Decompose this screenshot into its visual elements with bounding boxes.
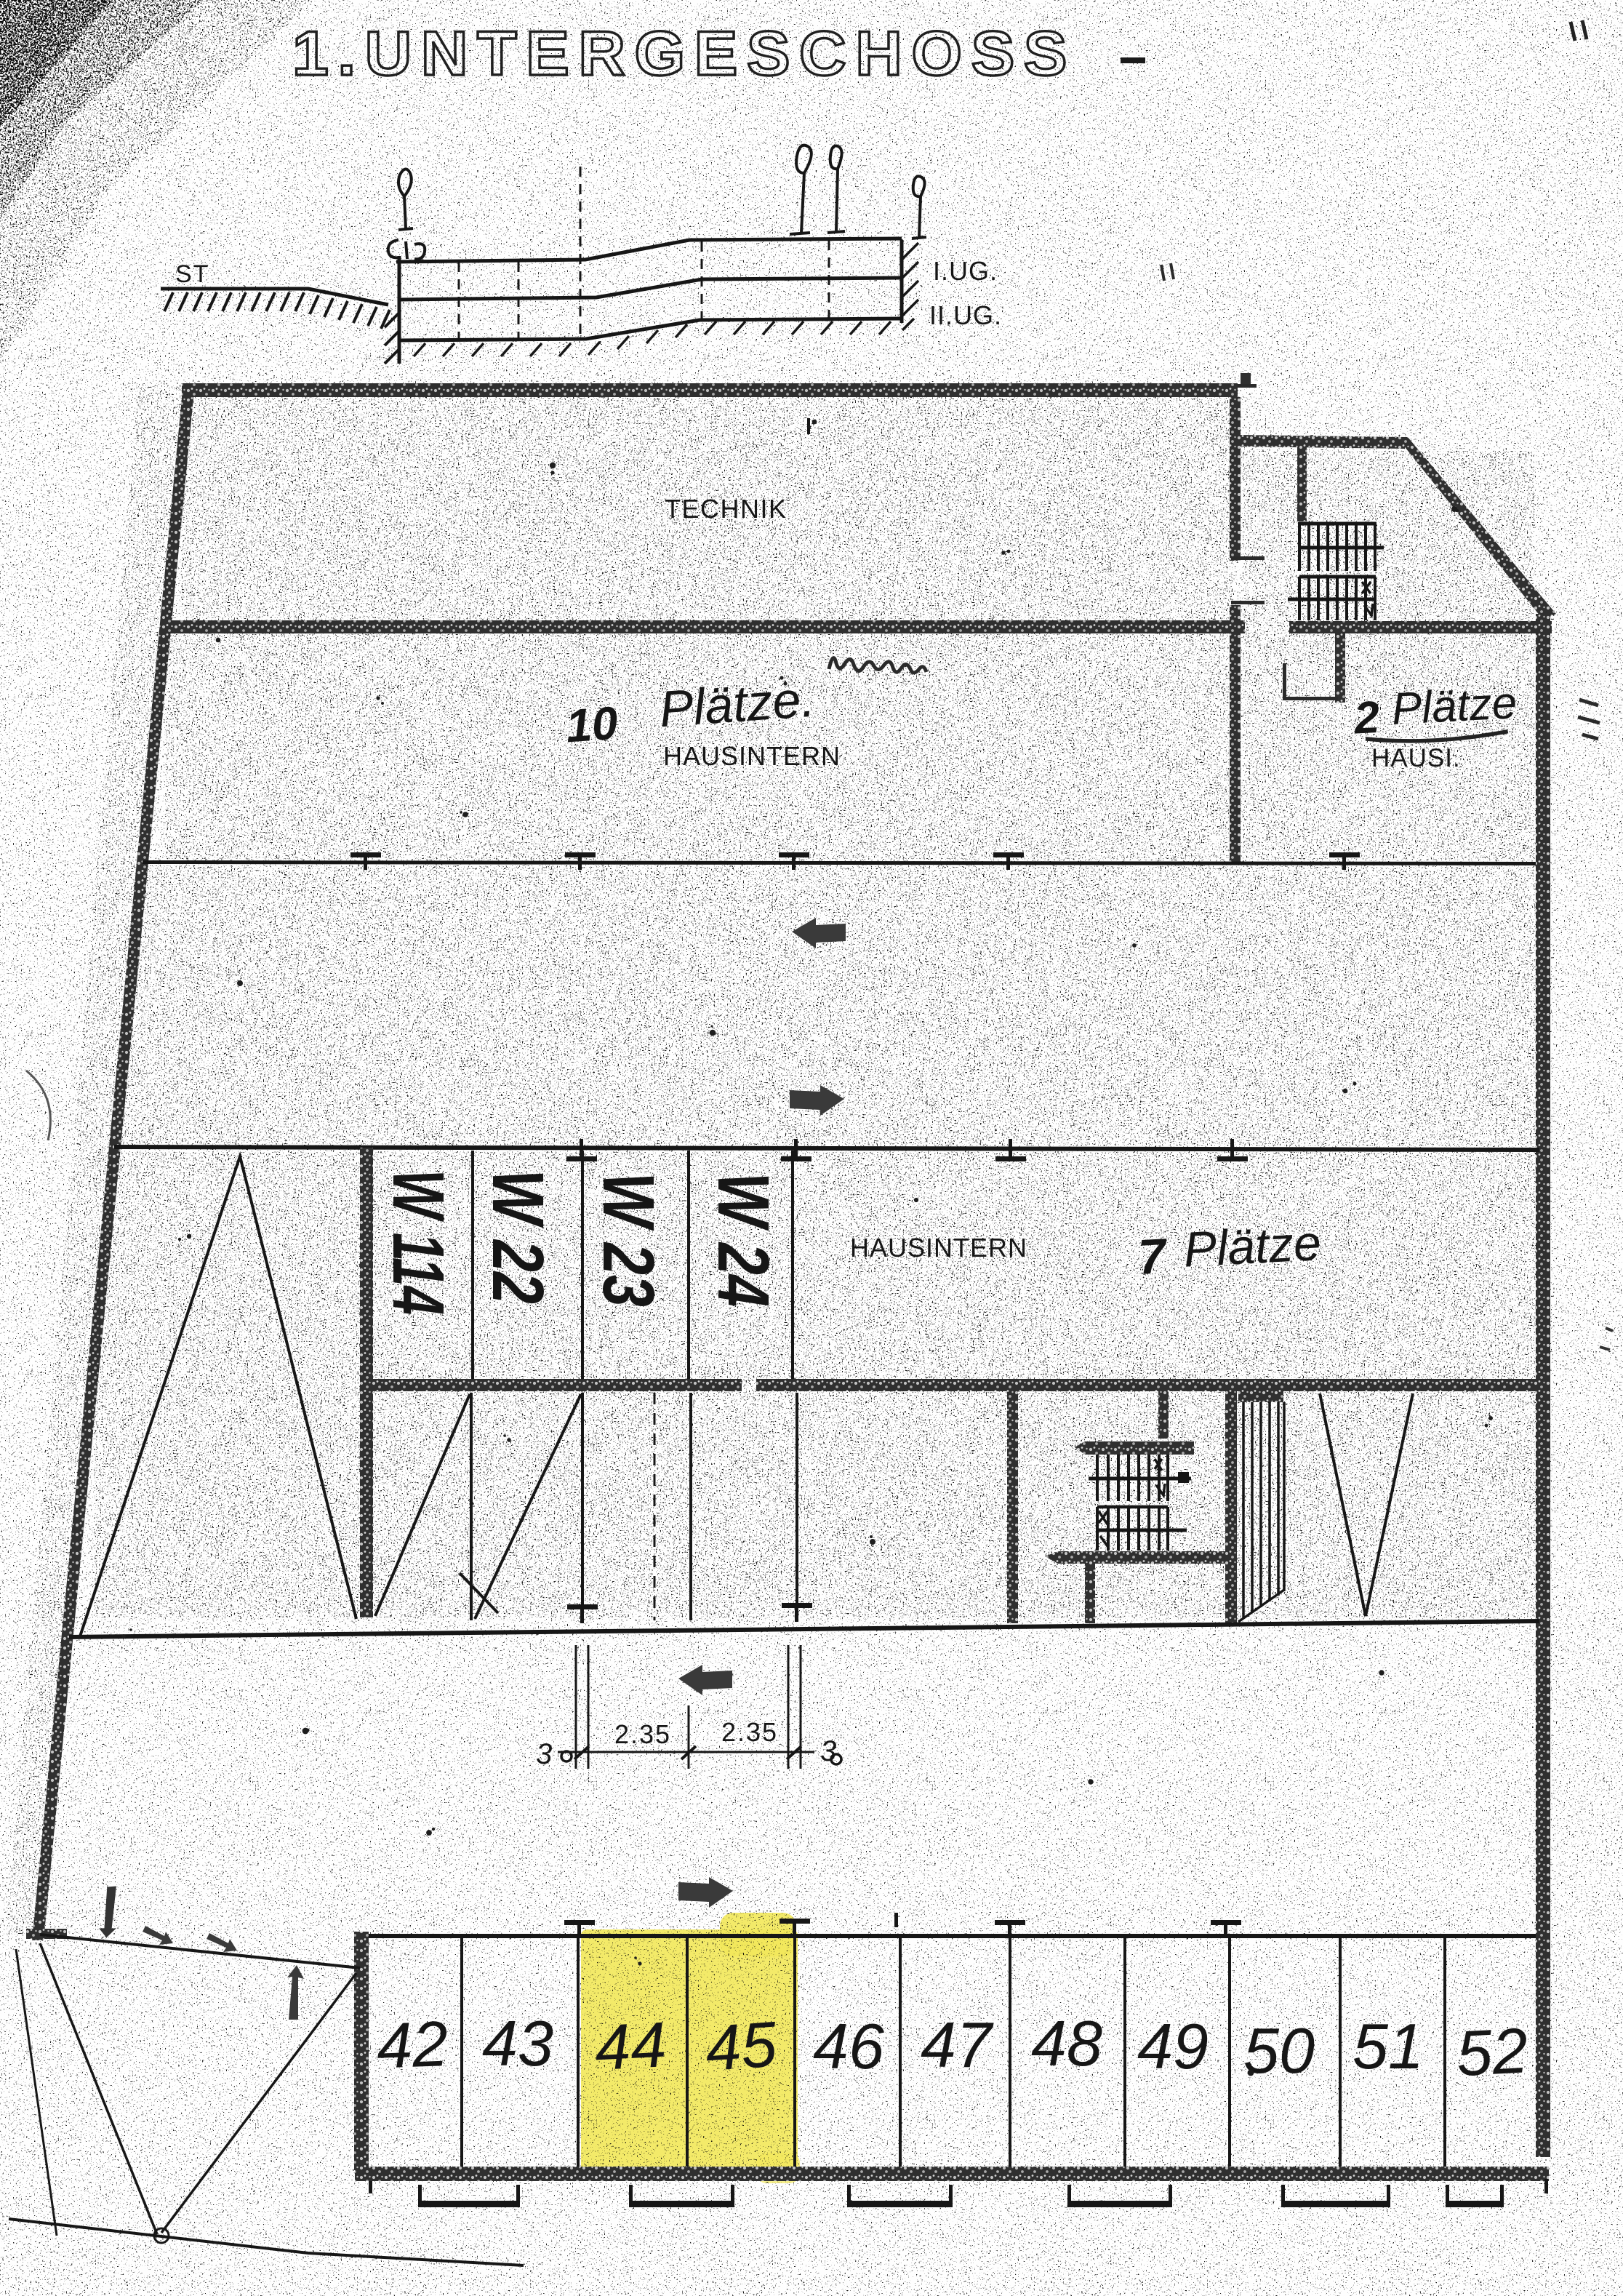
svg-text:HAUSI.: HAUSI. (1371, 744, 1461, 772)
svg-text:48: 48 (1031, 2007, 1102, 2079)
svg-text:Plätze.: Plätze. (657, 671, 817, 738)
svg-text:HAUSINTERN: HAUSINTERN (663, 741, 841, 771)
svg-text:ST: ST (175, 260, 209, 288)
svg-text:44: 44 (593, 2008, 668, 2084)
svg-text:W 114: W 114 (377, 1169, 459, 1315)
svg-text:51: 51 (1352, 2010, 1424, 2082)
svg-text:2.35: 2.35 (614, 1719, 671, 1749)
svg-text:I.UG.: I.UG. (933, 256, 998, 286)
svg-text:45: 45 (703, 2007, 780, 2084)
svg-text:46: 46 (813, 2010, 884, 2082)
svg-text:50: 50 (1243, 2015, 1315, 2087)
svg-text:10: 10 (564, 697, 620, 753)
svg-text:2: 2 (1352, 692, 1381, 744)
svg-text:43: 43 (482, 2007, 553, 2079)
svg-text:52: 52 (1455, 2014, 1530, 2089)
svg-text:Plätze: Plätze (1182, 1215, 1323, 1278)
svg-text:2.35: 2.35 (721, 1717, 778, 1747)
svg-text:Plätze: Plätze (1390, 678, 1518, 735)
svg-text:7: 7 (1137, 1228, 1169, 1285)
svg-text:TECHNIK: TECHNIK (665, 494, 788, 524)
svg-text:1.UNTERGESCHOSS: 1.UNTERGESCHOSS (292, 19, 1076, 89)
svg-text:42: 42 (375, 2007, 449, 2081)
svg-text:HAUSINTERN: HAUSINTERN (850, 1233, 1027, 1263)
svg-text:II.UG.: II.UG. (929, 300, 1002, 330)
svg-text:W 22: W 22 (477, 1169, 558, 1304)
svg-text:49: 49 (1137, 2010, 1209, 2082)
svg-text:3: 3 (536, 1738, 552, 1770)
svg-text:W 23: W 23 (588, 1172, 669, 1307)
svg-text:3: 3 (820, 1735, 836, 1767)
svg-text:47: 47 (921, 2009, 994, 2081)
svg-text:W 24: W 24 (702, 1172, 784, 1307)
